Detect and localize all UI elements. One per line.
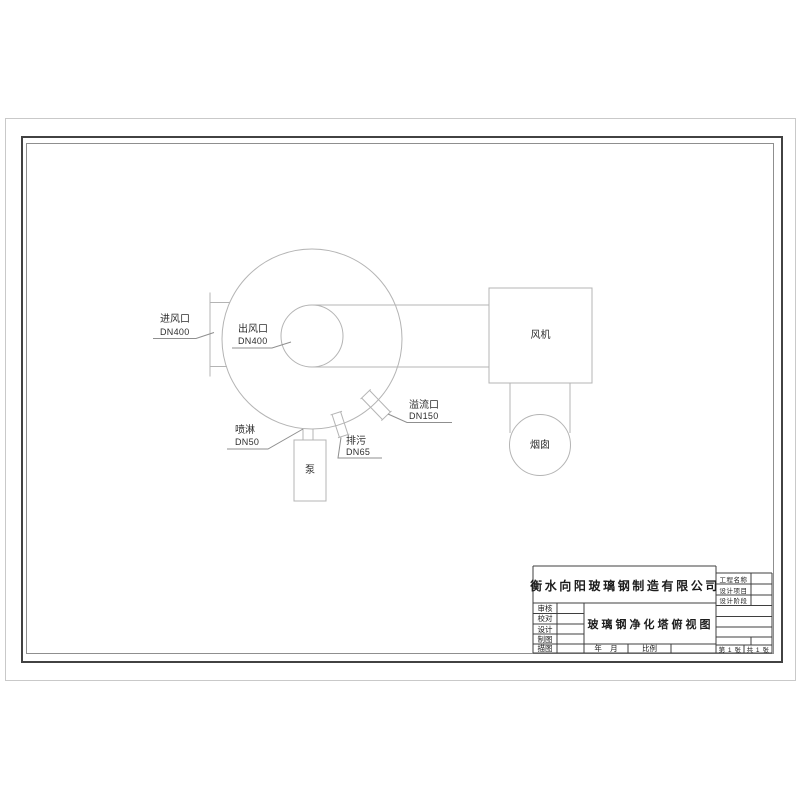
titleblock-row-shenhe: 审核 xyxy=(533,603,557,614)
titleblock-scale-cell: 比例 xyxy=(628,644,671,653)
titleblock-date-cell: 年 月 xyxy=(584,644,628,653)
titleblock-row-miaotu: 描图 xyxy=(533,644,557,653)
overflow-label: 溢流口 xyxy=(409,400,439,411)
titleblock-row-design-item: 设计项目 xyxy=(716,584,751,595)
outlet-size-label: DN400 xyxy=(238,336,268,346)
outlet-label: 出风口 xyxy=(238,324,268,335)
spray-size-label: DN50 xyxy=(235,437,259,447)
titleblock-row-sheji: 设计 xyxy=(533,624,557,634)
titleblock-row-project-name: 工程名称 xyxy=(716,573,751,584)
inlet-label: 进风口 xyxy=(160,314,190,325)
titleblock-row-design-stage: 设计阶段 xyxy=(716,595,751,606)
titleblock-row-jiaodui: 校对 xyxy=(533,614,557,625)
drain-label: 排污 xyxy=(346,436,366,447)
inlet-size-label: DN400 xyxy=(160,327,190,337)
chimney-label: 烟囱 xyxy=(510,431,570,459)
titleblock-sheet-no: 第 1 张 xyxy=(716,645,744,653)
titleblock-sheet-total: 共 1 张 xyxy=(744,645,772,653)
cad-sheet-page: { "colors": { "drawing_line": "#b4b4b4",… xyxy=(0,0,800,800)
overflow-size-label: DN150 xyxy=(409,411,439,421)
drawing-title: 玻璃钢净化塔俯视图 xyxy=(585,603,716,644)
pump-label: 泵 xyxy=(294,440,326,501)
drain-size-label: DN65 xyxy=(346,447,370,457)
fan-label: 风机 xyxy=(489,288,592,383)
spray-label: 喷淋 xyxy=(235,425,255,436)
company-name: 衡水向阳玻璃钢制造有限公司 xyxy=(534,567,716,603)
